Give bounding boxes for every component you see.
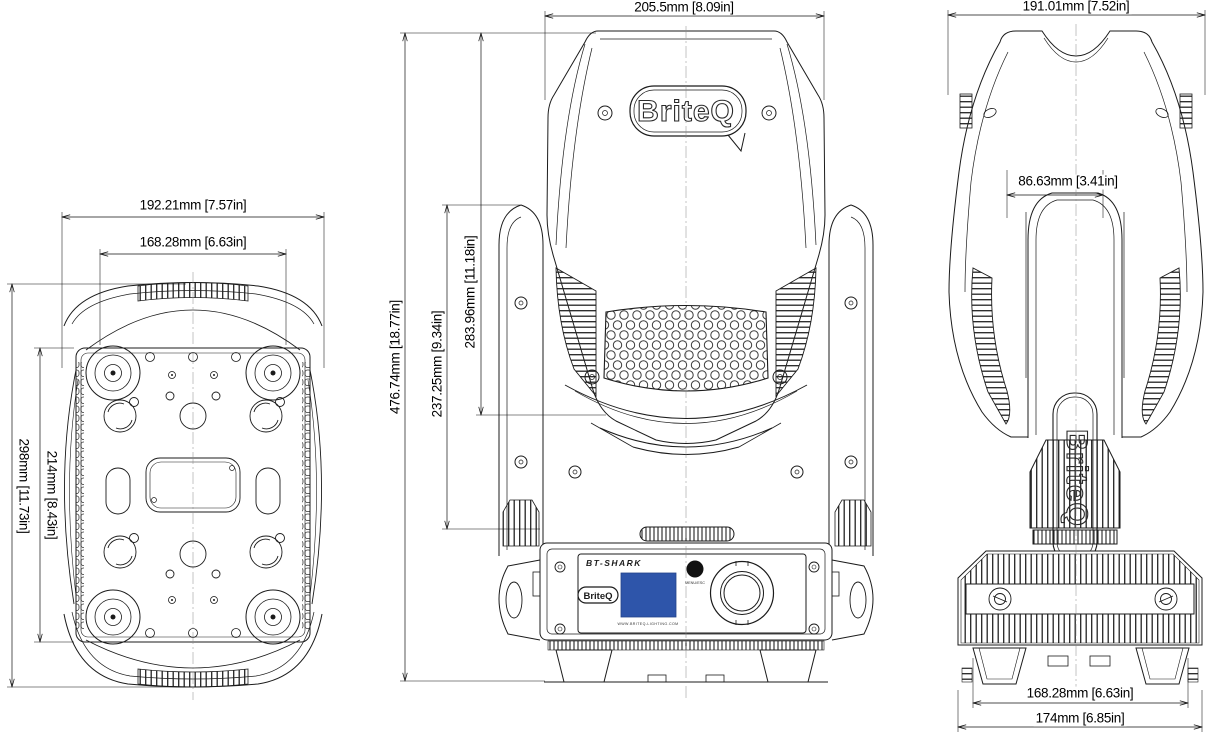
dim-label-side-feet-span: 168.28mm [6.63in] (1025, 687, 1136, 702)
dim-label-bottom-outer-width: 192.21mm [7.57in] (138, 199, 249, 214)
yoke-arm-right (829, 205, 873, 556)
technical-drawing-bt-shark: BriteQ (0, 0, 1214, 734)
menu-esc-label: MENU/ESC (685, 581, 705, 585)
menu-esc-button[interactable] (687, 561, 704, 578)
dim-label-bottom-inner-width: 168.28mm [6.63in] (138, 236, 249, 251)
side-vent-right (776, 268, 816, 396)
lcd-screen[interactable] (621, 573, 676, 617)
side-view: BriteQ (949, 24, 1203, 700)
brand-badge-text: BriteQ (583, 591, 612, 602)
arm-fin-block (1030, 440, 1120, 528)
side-vent-left (556, 268, 596, 396)
base-side (958, 551, 1202, 684)
edge-rib-band-left (76, 362, 84, 630)
yoke-arm-side: BriteQ (1028, 193, 1122, 563)
dim-label-front-head-width: 205.5mm [8.09in] (632, 1, 736, 16)
dim-bottom-outer-length (7, 284, 186, 687)
drawing-canvas: BriteQ (0, 0, 1214, 734)
front-view: BriteQ (499, 26, 873, 700)
dim-label-front-yoke-height: 237.25mm [9.34in] (431, 309, 446, 420)
pan-ring (640, 527, 734, 541)
dim-label-front-head-height: 283.96mm [11.18in] (464, 234, 479, 351)
edge-rib-band-right (302, 362, 310, 630)
dim-label-front-total-height: 476.74mm [18.77in] (389, 298, 404, 416)
dim-label-side-overall-depth: 191.01mm [7.52in] (1021, 0, 1132, 14)
pan-ring-side (1033, 530, 1117, 544)
yoke-arm-left (499, 205, 543, 556)
bottom-view (64, 272, 322, 700)
website-label: WWW.BRITEQ-LIGHTING.COM (617, 622, 678, 626)
dim-label-side-yoke-width: 86.63mm [3.41in] (1016, 175, 1120, 190)
dim-label-side-base-depth: 174mm [6.85in] (1034, 712, 1127, 727)
dim-label-bottom-inner-length: 214mm [8.43in] (44, 449, 59, 542)
twist-locks (104, 398, 285, 569)
dim-label-bottom-outer-length: 298mm [11.73in] (16, 436, 31, 535)
model-label: BT-SHARK (586, 558, 642, 568)
